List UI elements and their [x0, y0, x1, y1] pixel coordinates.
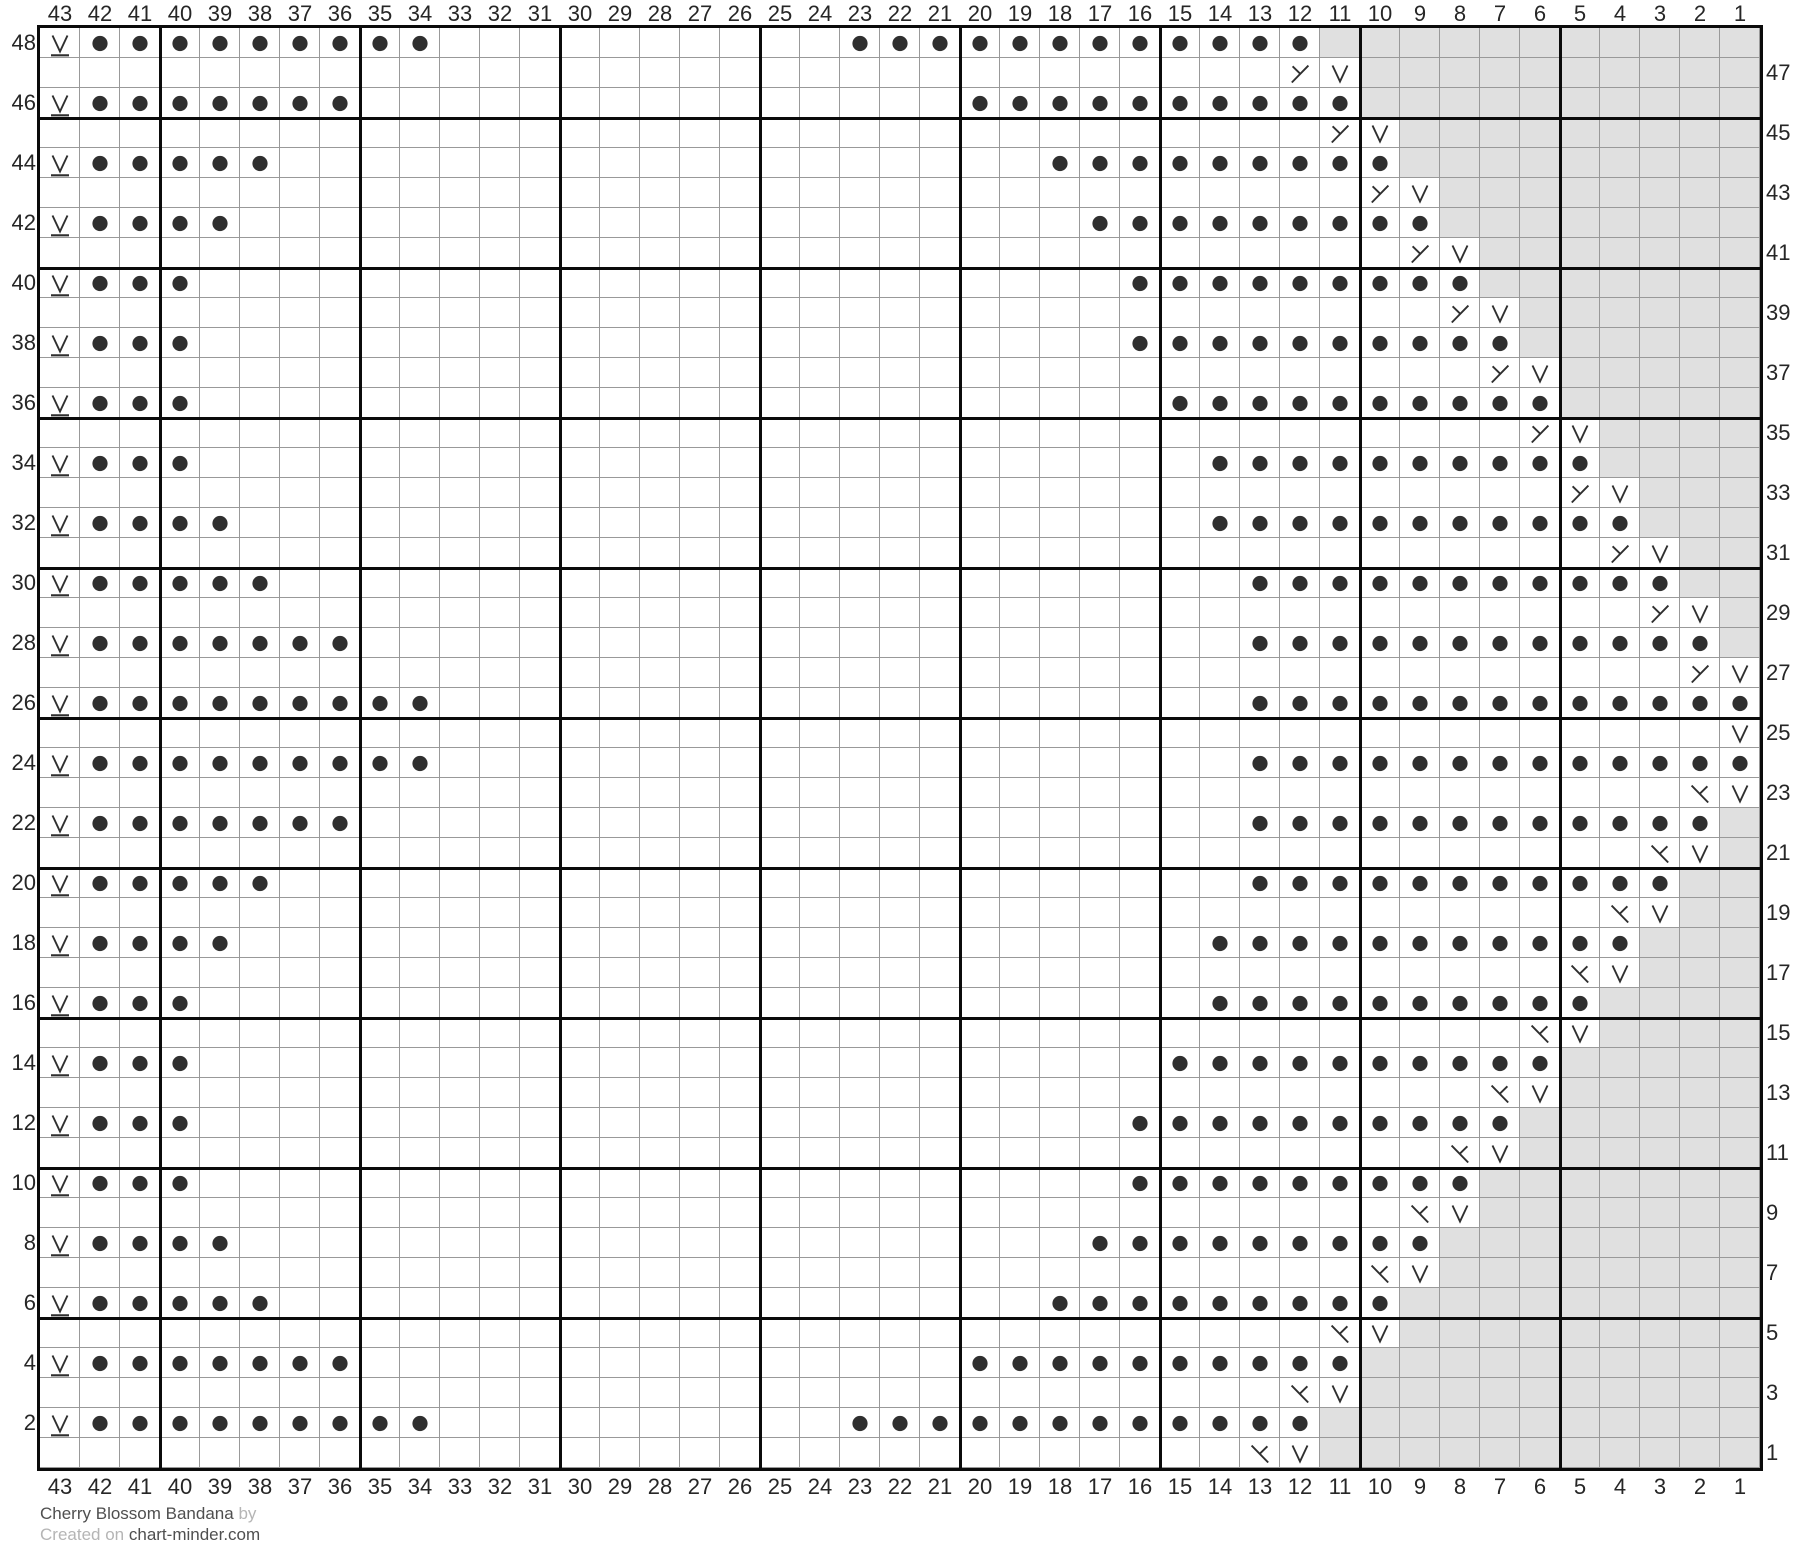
chart-cell[interactable] — [80, 808, 120, 838]
chart-cell[interactable] — [1720, 748, 1760, 778]
chart-cell[interactable] — [120, 238, 160, 268]
chart-cell[interactable] — [1240, 988, 1280, 1018]
chart-cell[interactable] — [1680, 778, 1720, 808]
chart-cell[interactable] — [120, 1078, 160, 1108]
chart-cell[interactable] — [400, 898, 440, 928]
chart-cell[interactable] — [1120, 328, 1160, 358]
chart-cell[interactable] — [800, 88, 840, 118]
chart-cell[interactable] — [200, 1198, 240, 1228]
chart-cell[interactable] — [1080, 298, 1120, 328]
chart-cell[interactable] — [520, 478, 560, 508]
chart-cell[interactable] — [680, 718, 720, 748]
chart-cell[interactable] — [1280, 268, 1320, 298]
chart-cell[interactable] — [600, 238, 640, 268]
chart-cell[interactable] — [200, 118, 240, 148]
chart-cell[interactable] — [840, 508, 880, 538]
chart-cell[interactable] — [800, 748, 840, 778]
chart-cell[interactable] — [1480, 1288, 1520, 1318]
chart-cell[interactable] — [1720, 478, 1760, 508]
chart-cell[interactable] — [1720, 1168, 1760, 1198]
chart-cell[interactable] — [1000, 748, 1040, 778]
chart-cell[interactable] — [1040, 1378, 1080, 1408]
chart-cell[interactable] — [1520, 538, 1560, 568]
chart-cell[interactable] — [200, 178, 240, 208]
chart-cell[interactable] — [160, 298, 200, 328]
chart-cell[interactable] — [40, 508, 80, 538]
chart-cell[interactable] — [360, 1198, 400, 1228]
chart-cell[interactable] — [280, 238, 320, 268]
chart-cell[interactable] — [1520, 1078, 1560, 1108]
chart-cell[interactable] — [520, 1288, 560, 1318]
chart-cell[interactable] — [800, 1018, 840, 1048]
chart-cell[interactable] — [1400, 688, 1440, 718]
chart-cell[interactable] — [320, 718, 360, 748]
chart-cell[interactable] — [320, 928, 360, 958]
chart-cell[interactable] — [640, 28, 680, 58]
chart-cell[interactable] — [1440, 718, 1480, 748]
chart-cell[interactable] — [80, 538, 120, 568]
chart-cell[interactable] — [1360, 1258, 1400, 1288]
chart-cell[interactable] — [920, 718, 960, 748]
chart-cell[interactable] — [520, 508, 560, 538]
chart-cell[interactable] — [1400, 28, 1440, 58]
chart-cell[interactable] — [1360, 1018, 1400, 1048]
chart-cell[interactable] — [760, 1288, 800, 1318]
chart-cell[interactable] — [520, 178, 560, 208]
chart-cell[interactable] — [1560, 988, 1600, 1018]
chart-cell[interactable] — [80, 118, 120, 148]
chart-cell[interactable] — [1120, 778, 1160, 808]
chart-cell[interactable] — [1160, 1108, 1200, 1138]
chart-cell[interactable] — [640, 628, 680, 658]
chart-cell[interactable] — [1200, 1108, 1240, 1138]
chart-cell[interactable] — [1440, 1138, 1480, 1168]
chart-cell[interactable] — [640, 1288, 680, 1318]
chart-cell[interactable] — [1440, 58, 1480, 88]
chart-cell[interactable] — [760, 658, 800, 688]
chart-cell[interactable] — [1120, 1228, 1160, 1258]
chart-cell[interactable] — [1240, 58, 1280, 88]
chart-cell[interactable] — [1040, 298, 1080, 328]
chart-cell[interactable] — [320, 658, 360, 688]
chart-cell[interactable] — [1160, 1228, 1200, 1258]
chart-cell[interactable] — [1560, 418, 1600, 448]
chart-cell[interactable] — [1320, 88, 1360, 118]
chart-cell[interactable] — [360, 1168, 400, 1198]
chart-cell[interactable] — [880, 268, 920, 298]
chart-cell[interactable] — [320, 1288, 360, 1318]
chart-cell[interactable] — [600, 328, 640, 358]
chart-cell[interactable] — [1560, 1378, 1600, 1408]
chart-cell[interactable] — [1400, 1318, 1440, 1348]
chart-cell[interactable] — [560, 1168, 600, 1198]
chart-cell[interactable] — [440, 388, 480, 418]
chart-cell[interactable] — [1120, 1378, 1160, 1408]
chart-cell[interactable] — [760, 748, 800, 778]
chart-cell[interactable] — [1720, 148, 1760, 178]
chart-cell[interactable] — [680, 208, 720, 238]
chart-cell[interactable] — [960, 1318, 1000, 1348]
chart-cell[interactable] — [1600, 388, 1640, 418]
chart-cell[interactable] — [920, 598, 960, 628]
chart-cell[interactable] — [640, 868, 680, 898]
chart-cell[interactable] — [1480, 1318, 1520, 1348]
chart-cell[interactable] — [40, 268, 80, 298]
chart-cell[interactable] — [1000, 598, 1040, 628]
chart-cell[interactable] — [400, 1108, 440, 1138]
chart-cell[interactable] — [1280, 598, 1320, 628]
chart-cell[interactable] — [1440, 508, 1480, 538]
chart-cell[interactable] — [1360, 148, 1400, 178]
chart-cell[interactable] — [360, 958, 400, 988]
chart-cell[interactable] — [1200, 988, 1240, 1018]
chart-cell[interactable] — [440, 208, 480, 238]
chart-cell[interactable] — [160, 418, 200, 448]
chart-cell[interactable] — [1320, 1288, 1360, 1318]
chart-cell[interactable] — [320, 748, 360, 778]
chart-cell[interactable] — [240, 748, 280, 778]
chart-cell[interactable] — [200, 298, 240, 328]
chart-cell[interactable] — [680, 898, 720, 928]
chart-cell[interactable] — [360, 568, 400, 598]
chart-cell[interactable] — [520, 118, 560, 148]
chart-cell[interactable] — [1600, 748, 1640, 778]
chart-cell[interactable] — [440, 328, 480, 358]
chart-cell[interactable] — [320, 508, 360, 538]
chart-cell[interactable] — [1440, 1018, 1480, 1048]
chart-cell[interactable] — [600, 1258, 640, 1288]
chart-cell[interactable] — [1600, 328, 1640, 358]
chart-cell[interactable] — [1280, 508, 1320, 538]
chart-cell[interactable] — [680, 1168, 720, 1198]
chart-cell[interactable] — [1720, 1288, 1760, 1318]
chart-cell[interactable] — [120, 508, 160, 538]
chart-cell[interactable] — [200, 628, 240, 658]
chart-cell[interactable] — [240, 1138, 280, 1168]
chart-cell[interactable] — [400, 1168, 440, 1198]
chart-cell[interactable] — [720, 838, 760, 868]
chart-cell[interactable] — [1680, 418, 1720, 448]
chart-cell[interactable] — [1200, 718, 1240, 748]
chart-cell[interactable] — [720, 88, 760, 118]
chart-cell[interactable] — [1720, 58, 1760, 88]
chart-cell[interactable] — [1360, 1378, 1400, 1408]
chart-cell[interactable] — [280, 658, 320, 688]
chart-cell[interactable] — [840, 1078, 880, 1108]
chart-cell[interactable] — [320, 178, 360, 208]
chart-cell[interactable] — [640, 1138, 680, 1168]
chart-cell[interactable] — [280, 1258, 320, 1288]
chart-cell[interactable] — [1440, 448, 1480, 478]
chart-cell[interactable] — [520, 1078, 560, 1108]
chart-cell[interactable] — [1640, 388, 1680, 418]
chart-cell[interactable] — [600, 1438, 640, 1468]
chart-cell[interactable] — [400, 1078, 440, 1108]
chart-cell[interactable] — [1640, 898, 1680, 928]
chart-cell[interactable] — [1240, 1348, 1280, 1378]
chart-cell[interactable] — [240, 88, 280, 118]
chart-cell[interactable] — [120, 178, 160, 208]
chart-cell[interactable] — [920, 1408, 960, 1438]
chart-cell[interactable] — [1120, 1138, 1160, 1168]
chart-cell[interactable] — [1160, 928, 1200, 958]
chart-cell[interactable] — [920, 1318, 960, 1348]
chart-cell[interactable] — [480, 508, 520, 538]
chart-cell[interactable] — [1680, 748, 1720, 778]
chart-cell[interactable] — [880, 1168, 920, 1198]
chart-cell[interactable] — [240, 568, 280, 598]
chart-cell[interactable] — [1680, 718, 1720, 748]
chart-cell[interactable] — [760, 1048, 800, 1078]
chart-cell[interactable] — [680, 538, 720, 568]
chart-cell[interactable] — [1000, 868, 1040, 898]
chart-cell[interactable] — [1560, 658, 1600, 688]
chart-cell[interactable] — [640, 568, 680, 598]
chart-cell[interactable] — [1720, 1258, 1760, 1288]
chart-cell[interactable] — [1560, 118, 1600, 148]
chart-cell[interactable] — [1440, 268, 1480, 298]
chart-cell[interactable] — [560, 1198, 600, 1228]
chart-cell[interactable] — [1160, 1018, 1200, 1048]
chart-cell[interactable] — [80, 28, 120, 58]
chart-cell[interactable] — [240, 958, 280, 988]
chart-cell[interactable] — [880, 118, 920, 148]
chart-cell[interactable] — [1320, 598, 1360, 628]
chart-cell[interactable] — [920, 958, 960, 988]
chart-cell[interactable] — [800, 1348, 840, 1378]
chart-cell[interactable] — [760, 118, 800, 148]
chart-cell[interactable] — [280, 418, 320, 448]
chart-cell[interactable] — [240, 1438, 280, 1468]
chart-cell[interactable] — [1520, 868, 1560, 898]
chart-cell[interactable] — [800, 718, 840, 748]
chart-cell[interactable] — [560, 838, 600, 868]
chart-cell[interactable] — [1240, 1228, 1280, 1258]
chart-cell[interactable] — [1200, 1438, 1240, 1468]
chart-cell[interactable] — [920, 478, 960, 508]
chart-cell[interactable] — [1480, 1408, 1520, 1438]
chart-cell[interactable] — [1200, 808, 1240, 838]
chart-cell[interactable] — [920, 988, 960, 1018]
chart-cell[interactable] — [960, 178, 1000, 208]
chart-cell[interactable] — [640, 1348, 680, 1378]
chart-cell[interactable] — [200, 1138, 240, 1168]
chart-cell[interactable] — [640, 718, 680, 748]
chart-cell[interactable] — [760, 88, 800, 118]
chart-cell[interactable] — [1000, 658, 1040, 688]
chart-cell[interactable] — [1640, 1348, 1680, 1378]
chart-cell[interactable] — [680, 1108, 720, 1138]
chart-cell[interactable] — [80, 1438, 120, 1468]
chart-cell[interactable] — [1160, 298, 1200, 328]
chart-cell[interactable] — [1200, 298, 1240, 328]
chart-cell[interactable] — [1160, 898, 1200, 928]
chart-cell[interactable] — [1000, 628, 1040, 658]
chart-cell[interactable] — [1440, 568, 1480, 598]
chart-cell[interactable] — [680, 1018, 720, 1048]
chart-cell[interactable] — [1200, 1228, 1240, 1258]
chart-cell[interactable] — [560, 478, 600, 508]
chart-cell[interactable] — [920, 448, 960, 478]
chart-cell[interactable] — [200, 238, 240, 268]
chart-cell[interactable] — [440, 898, 480, 928]
chart-cell[interactable] — [360, 658, 400, 688]
chart-cell[interactable] — [280, 388, 320, 418]
chart-cell[interactable] — [40, 718, 80, 748]
chart-cell[interactable] — [1200, 838, 1240, 868]
chart-cell[interactable] — [320, 958, 360, 988]
chart-cell[interactable] — [600, 658, 640, 688]
chart-cell[interactable] — [680, 1318, 720, 1348]
chart-cell[interactable] — [80, 358, 120, 388]
chart-cell[interactable] — [40, 1348, 80, 1378]
chart-cell[interactable] — [1480, 838, 1520, 868]
chart-cell[interactable] — [1120, 268, 1160, 298]
chart-cell[interactable] — [1200, 868, 1240, 898]
chart-cell[interactable] — [280, 628, 320, 658]
chart-cell[interactable] — [1680, 628, 1720, 658]
chart-cell[interactable] — [600, 358, 640, 388]
chart-cell[interactable] — [80, 508, 120, 538]
chart-cell[interactable] — [440, 1318, 480, 1348]
chart-cell[interactable] — [1720, 1018, 1760, 1048]
chart-cell[interactable] — [240, 538, 280, 568]
chart-cell[interactable] — [600, 778, 640, 808]
chart-cell[interactable] — [960, 808, 1000, 838]
chart-cell[interactable] — [800, 658, 840, 688]
chart-cell[interactable] — [120, 1138, 160, 1168]
chart-cell[interactable] — [1520, 358, 1560, 388]
chart-cell[interactable] — [160, 748, 200, 778]
chart-cell[interactable] — [400, 58, 440, 88]
chart-cell[interactable] — [480, 1078, 520, 1108]
chart-cell[interactable] — [1080, 58, 1120, 88]
chart-cell[interactable] — [760, 1018, 800, 1048]
chart-cell[interactable] — [1240, 208, 1280, 238]
chart-cell[interactable] — [120, 328, 160, 358]
chart-cell[interactable] — [720, 688, 760, 718]
chart-cell[interactable] — [1040, 1108, 1080, 1138]
chart-cell[interactable] — [1440, 748, 1480, 778]
chart-cell[interactable] — [960, 478, 1000, 508]
chart-cell[interactable] — [120, 928, 160, 958]
chart-cell[interactable] — [720, 718, 760, 748]
chart-cell[interactable] — [160, 508, 200, 538]
chart-cell[interactable] — [1520, 688, 1560, 718]
chart-cell[interactable] — [800, 868, 840, 898]
chart-cell[interactable] — [1200, 478, 1240, 508]
chart-cell[interactable] — [160, 718, 200, 748]
chart-cell[interactable] — [320, 898, 360, 928]
chart-cell[interactable] — [160, 238, 200, 268]
chart-cell[interactable] — [1080, 958, 1120, 988]
chart-cell[interactable] — [360, 238, 400, 268]
chart-cell[interactable] — [640, 1198, 680, 1228]
chart-cell[interactable] — [720, 1258, 760, 1288]
chart-cell[interactable] — [1120, 478, 1160, 508]
chart-cell[interactable] — [40, 538, 80, 568]
chart-cell[interactable] — [80, 148, 120, 178]
chart-cell[interactable] — [1280, 358, 1320, 388]
chart-cell[interactable] — [1520, 628, 1560, 658]
chart-cell[interactable] — [440, 598, 480, 628]
chart-cell[interactable] — [1600, 1348, 1640, 1378]
chart-cell[interactable] — [640, 178, 680, 208]
chart-cell[interactable] — [840, 328, 880, 358]
chart-cell[interactable] — [840, 1348, 880, 1378]
chart-cell[interactable] — [1360, 658, 1400, 688]
chart-cell[interactable] — [680, 298, 720, 328]
chart-cell[interactable] — [520, 688, 560, 718]
chart-cell[interactable] — [1400, 1228, 1440, 1258]
chart-cell[interactable] — [1320, 148, 1360, 178]
chart-cell[interactable] — [360, 328, 400, 358]
chart-cell[interactable] — [960, 208, 1000, 238]
chart-cell[interactable] — [960, 118, 1000, 148]
chart-cell[interactable] — [560, 208, 600, 238]
chart-cell[interactable] — [1240, 238, 1280, 268]
chart-cell[interactable] — [600, 388, 640, 418]
chart-cell[interactable] — [1280, 1078, 1320, 1108]
chart-cell[interactable] — [40, 1108, 80, 1138]
chart-cell[interactable] — [360, 1228, 400, 1258]
chart-cell[interactable] — [200, 688, 240, 718]
chart-cell[interactable] — [960, 1288, 1000, 1318]
chart-cell[interactable] — [1280, 1228, 1320, 1258]
chart-cell[interactable] — [1040, 808, 1080, 838]
chart-cell[interactable] — [1520, 28, 1560, 58]
chart-cell[interactable] — [1120, 118, 1160, 148]
chart-cell[interactable] — [400, 658, 440, 688]
chart-cell[interactable] — [1400, 1018, 1440, 1048]
chart-cell[interactable] — [160, 658, 200, 688]
chart-cell[interactable] — [960, 1408, 1000, 1438]
chart-cell[interactable] — [1600, 988, 1640, 1018]
chart-cell[interactable] — [80, 238, 120, 268]
chart-cell[interactable] — [160, 598, 200, 628]
chart-cell[interactable] — [400, 1048, 440, 1078]
chart-cell[interactable] — [640, 658, 680, 688]
chart-cell[interactable] — [1640, 148, 1680, 178]
chart-cell[interactable] — [1040, 688, 1080, 718]
chart-cell[interactable] — [1080, 1288, 1120, 1318]
chart-cell[interactable] — [1320, 388, 1360, 418]
chart-cell[interactable] — [1000, 1138, 1040, 1168]
chart-cell[interactable] — [1120, 598, 1160, 628]
chart-cell[interactable] — [960, 718, 1000, 748]
chart-cell[interactable] — [1680, 88, 1720, 118]
chart-cell[interactable] — [360, 868, 400, 898]
chart-cell[interactable] — [1160, 1288, 1200, 1318]
chart-cell[interactable] — [280, 928, 320, 958]
chart-cell[interactable] — [1720, 628, 1760, 658]
chart-cell[interactable] — [760, 238, 800, 268]
chart-cell[interactable] — [1400, 778, 1440, 808]
chart-cell[interactable] — [840, 718, 880, 748]
chart-cell[interactable] — [560, 88, 600, 118]
chart-cell[interactable] — [280, 58, 320, 88]
chart-cell[interactable] — [320, 988, 360, 1018]
chart-cell[interactable] — [1440, 928, 1480, 958]
chart-cell[interactable] — [1120, 148, 1160, 178]
chart-cell[interactable] — [720, 1168, 760, 1198]
chart-cell[interactable] — [1120, 1288, 1160, 1318]
chart-cell[interactable] — [960, 1198, 1000, 1228]
chart-cell[interactable] — [880, 538, 920, 568]
chart-cell[interactable] — [960, 538, 1000, 568]
chart-cell[interactable] — [720, 58, 760, 88]
chart-cell[interactable] — [1640, 868, 1680, 898]
